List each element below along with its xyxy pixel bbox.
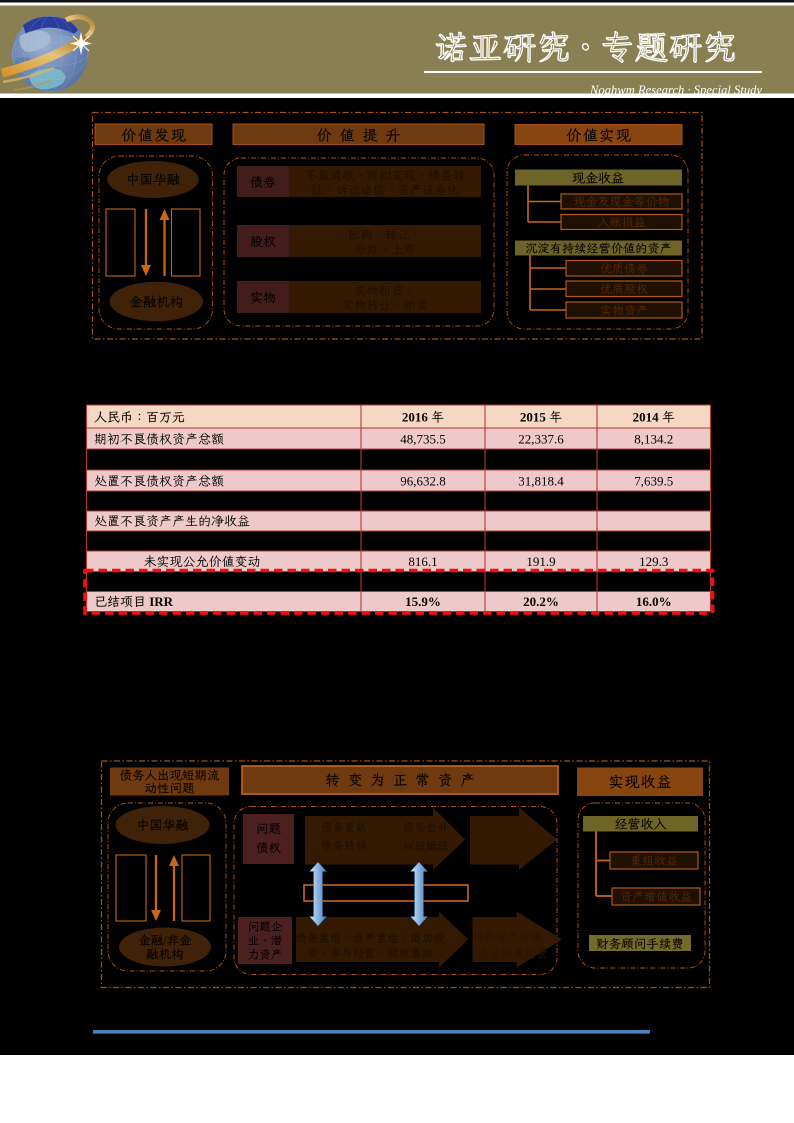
svg-text:2015: 2015 bbox=[520, 410, 547, 425]
svg-text:2014: 2014 bbox=[633, 410, 660, 425]
svg-text:/: / bbox=[163, 934, 167, 948]
svg-text:Noahwm Research · Special Stud: Noahwm Research · Special Study bbox=[589, 83, 762, 97]
svg-text:2016: 2016 bbox=[402, 410, 429, 425]
svg-text:IRR: IRR bbox=[149, 594, 173, 609]
